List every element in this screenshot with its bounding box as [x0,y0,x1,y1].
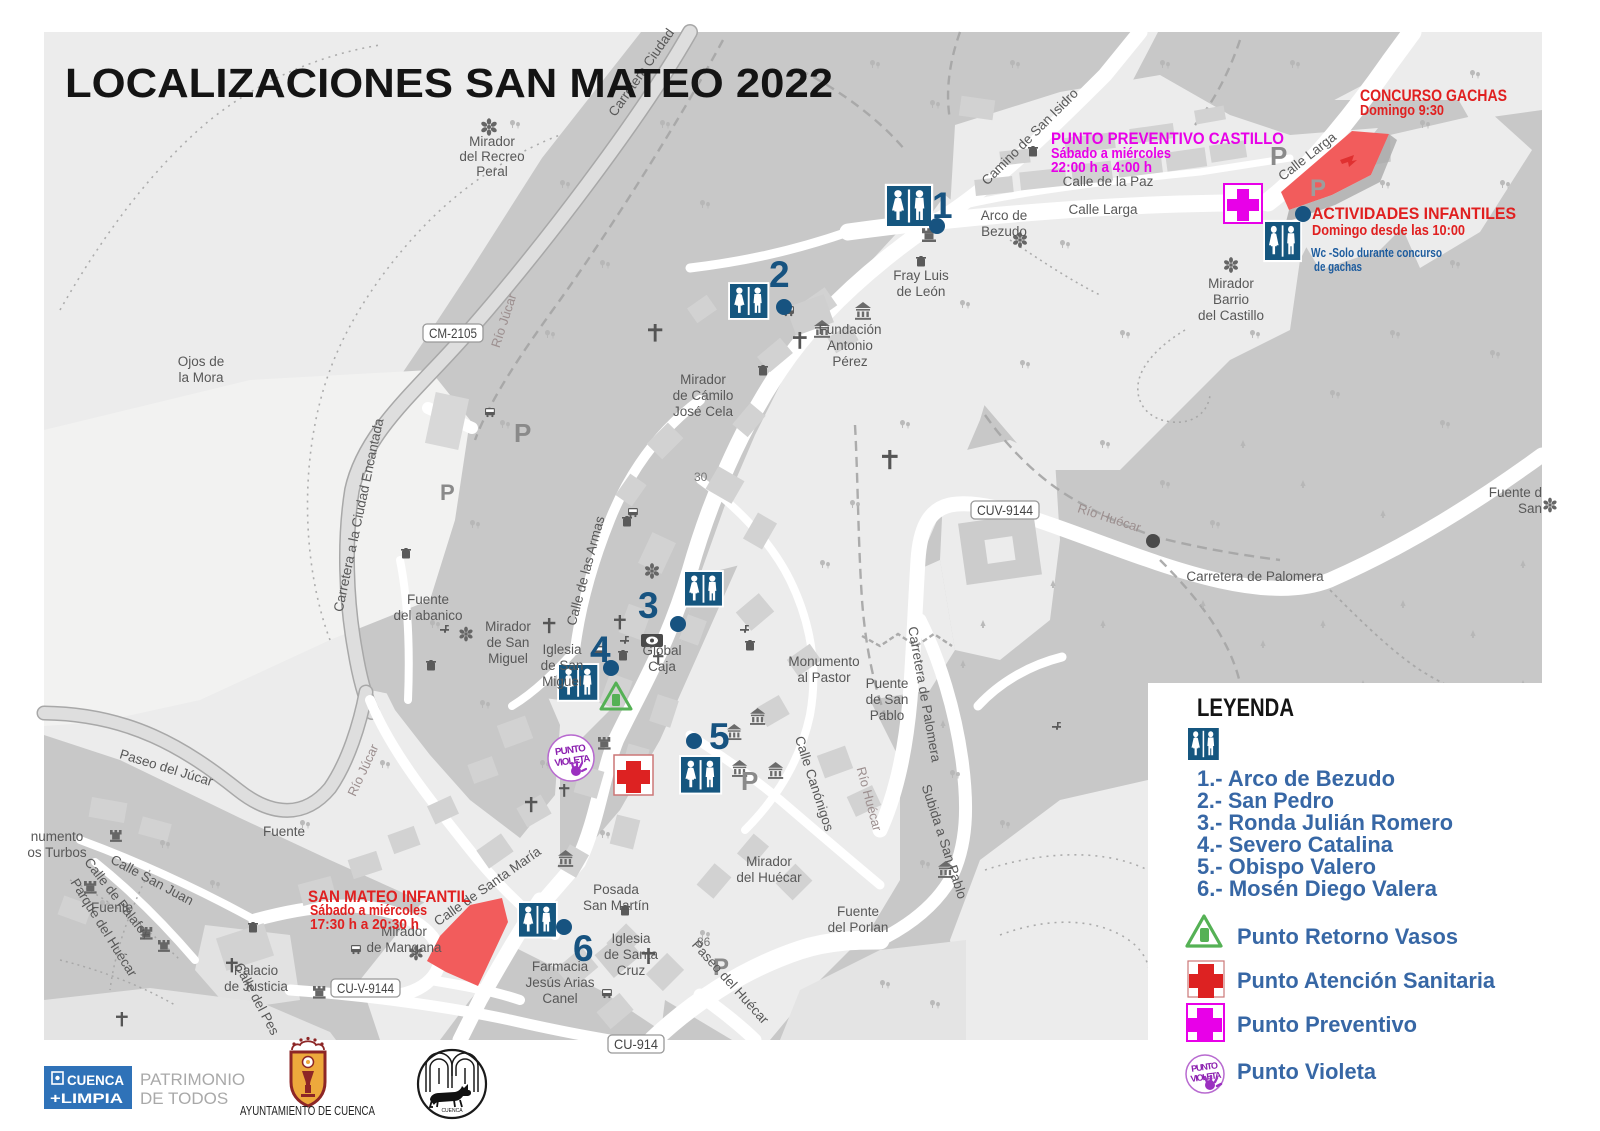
svg-text:LOCALIZACIONES SAN MATEO 2022: LOCALIZACIONES SAN MATEO 2022 [65,60,833,106]
svg-text:Barrio: Barrio [1213,292,1249,307]
svg-text:Global: Global [642,643,681,658]
svg-text:Bezudo: Bezudo [981,224,1027,239]
svg-text:os Turbos: os Turbos [27,845,87,860]
svg-text:Domingo desde las 10:00: Domingo desde las 10:00 [1312,222,1465,239]
svg-text:Jesús Arias: Jesús Arias [525,975,594,990]
svg-text:Punto Preventivo: Punto Preventivo [1237,1012,1417,1037]
svg-text:Fray Luis: Fray Luis [893,268,949,283]
svg-text:6.- Mosén Diego Valera: 6.- Mosén Diego Valera [1197,876,1438,901]
svg-text:de Santa: de Santa [604,947,659,962]
svg-text:Monumento: Monumento [788,654,859,669]
svg-text:CM-2105: CM-2105 [429,325,477,341]
svg-text:Miguel: Miguel [542,674,582,689]
svg-text:José Cela: José Cela [673,404,734,419]
svg-text:Pérez: Pérez [832,354,868,369]
svg-text:Peral: Peral [476,164,508,179]
svg-text:del Porlan: del Porlan [828,920,889,935]
svg-text:Punto Violeta: Punto Violeta [1237,1059,1377,1084]
svg-text:PATRIMONIO: PATRIMONIO [140,1070,245,1089]
svg-text:Miguel: Miguel [488,651,528,666]
svg-text:3: 3 [638,585,659,626]
svg-text:Canel: Canel [542,991,577,1006]
svg-text:CUENCA: CUENCA [67,1072,124,1088]
svg-text:Fuente d: Fuente d [1489,485,1542,500]
svg-text:Punto Retorno Vasos: Punto Retorno Vasos [1237,924,1458,949]
svg-text:Pablo: Pablo [870,708,905,723]
svg-text:al Pastor: al Pastor [797,670,851,685]
svg-text:de León: de León [897,284,946,299]
svg-text:CUV-9144: CUV-9144 [977,502,1033,518]
svg-text:Posada: Posada [593,882,639,897]
svg-text:DE TODOS: DE TODOS [140,1089,228,1108]
svg-text:CU-V-9144: CU-V-9144 [337,980,394,996]
svg-text:Carretera de Palomera: Carretera de Palomera [1186,569,1324,584]
svg-text:Mirador: Mirador [469,134,515,149]
svg-text:Punto Atención Sanitaria: Punto Atención Sanitaria [1237,968,1496,993]
svg-text:Puente: Puente [866,676,909,691]
svg-text:Fundación: Fundación [818,322,881,337]
svg-text:Ojos de: Ojos de [178,354,225,369]
svg-text:22:00 h a 4:00 h: 22:00 h a 4:00 h [1051,159,1152,176]
svg-text:Caja: Caja [648,659,676,674]
svg-text:la Mora: la Mora [178,370,224,385]
svg-text:Fuente: Fuente [407,592,449,607]
svg-text:P: P [514,418,531,448]
svg-text:ACTIVIDADES INFANTILES: ACTIVIDADES INFANTILES [1312,204,1516,223]
svg-text:del Castillo: del Castillo [1198,308,1264,323]
svg-text:Iglesia: Iglesia [542,642,582,657]
svg-text:17:30 h a 20:30 h: 17:30 h a 20:30 h [310,916,419,933]
svg-text:Calle de la Paz: Calle de la Paz [1063,174,1154,189]
svg-text:de San: de San [866,692,909,707]
svg-text:LEYENDA: LEYENDA [1197,694,1294,722]
svg-text:P: P [741,766,758,796]
svg-text:Wc -Solo durante concurso: Wc -Solo durante concurso [1311,246,1442,260]
svg-text:del Recreo: del Recreo [459,149,524,164]
svg-text:P: P [440,480,455,505]
svg-text:Mirador: Mirador [485,619,531,634]
svg-text:San: San [1518,501,1542,516]
svg-text:P: P [1310,175,1326,202]
svg-text:del Huécar: del Huécar [736,870,802,885]
svg-text:Mirador: Mirador [746,854,792,869]
svg-text:AYUNTAMIENTO DE CUENCA: AYUNTAMIENTO DE CUENCA [240,1104,376,1118]
svg-text:Calle Larga: Calle Larga [1068,202,1138,217]
svg-text:de Mangana: de Mangana [366,940,442,955]
svg-text:de gachas: de gachas [1314,260,1362,274]
svg-text:del abanico: del abanico [393,608,462,623]
svg-text:+LIMPIA: +LIMPIA [50,1090,123,1106]
svg-text:Mirador: Mirador [680,372,726,387]
svg-text:Farmacia: Farmacia [532,959,589,974]
svg-text:San Martín: San Martín [583,898,649,913]
svg-text:Domingo 9:30: Domingo 9:30 [1360,102,1444,119]
svg-text:Cruz: Cruz [617,963,646,978]
svg-text:Mirador: Mirador [1208,276,1254,291]
svg-text:CU-914: CU-914 [614,1036,658,1052]
svg-text:5: 5 [709,716,730,757]
svg-text:Fuente: Fuente [263,824,305,839]
svg-text:Arco de: Arco de [981,208,1028,223]
svg-text:2: 2 [769,254,790,295]
svg-text:Antonio: Antonio [827,338,873,353]
svg-text:de Cámilo: de Cámilo [673,388,734,403]
svg-text:de San: de San [541,658,584,673]
svg-text:numento: numento [31,829,84,844]
svg-text:CUENCA: CUENCA [441,1108,463,1114]
svg-text:Iglesia: Iglesia [611,931,651,946]
svg-text:de San: de San [487,635,530,650]
svg-text:Fuente: Fuente [837,904,879,919]
svg-text:30: 30 [694,470,708,484]
